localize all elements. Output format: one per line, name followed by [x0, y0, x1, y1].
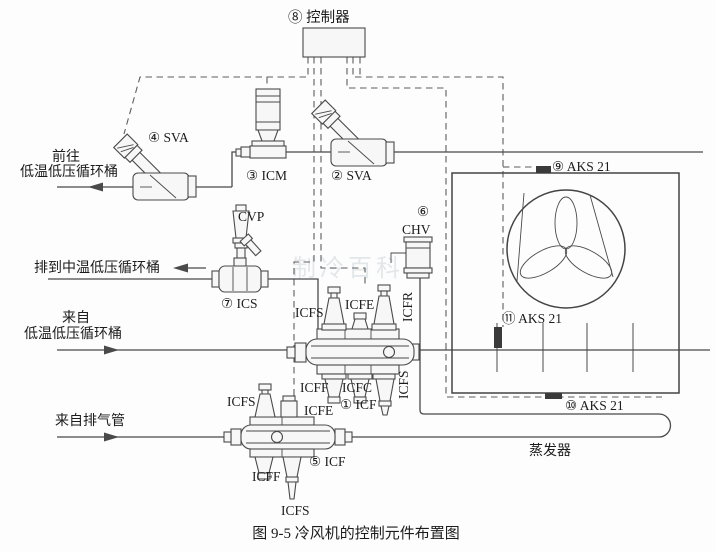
sensor-aks9	[536, 166, 551, 173]
evaporator-unit	[452, 173, 679, 393]
label-sva2: ② SVA	[331, 168, 372, 183]
icf5-cap-left	[224, 432, 231, 442]
control-line-to-aks11	[353, 57, 503, 327]
icf5-cap-right	[345, 432, 352, 442]
icf1-icfe-valve	[352, 319, 368, 329]
label-icf1-icfs-bottom: ICFS	[396, 370, 411, 399]
icf5-flange-left	[231, 429, 241, 445]
icf5-flange-right	[335, 429, 345, 445]
label-icf5-icfs-top: ICFS	[227, 394, 256, 409]
label-controller: ⑧ 控制器	[288, 9, 350, 26]
label-icf1-icfe: ICFE	[345, 297, 374, 312]
evaporator-box	[452, 173, 679, 393]
label-from-drum-2: 低温低压循环桶	[24, 326, 122, 342]
label-icm3: ③ ICM	[246, 168, 287, 183]
suction-pipe-top	[232, 152, 703, 187]
label-icf5-icfe: ICFE	[304, 403, 333, 418]
label-icf1-icfr: ICFR	[400, 292, 415, 322]
arrow-right-liquid	[104, 346, 119, 355]
icm-body	[250, 146, 286, 158]
icf1-icfs-bottom-cone	[376, 379, 394, 401]
label-icf5-icff: ICFF	[252, 469, 281, 484]
figure-9-5-diagram: 制冷百科	[0, 0, 716, 552]
sva4-flange	[188, 176, 196, 197]
icf1-flange-left	[295, 343, 306, 362]
icf5-sight-glass	[272, 432, 283, 443]
label-sva4: ④ SVA	[148, 130, 189, 145]
valve-icm-3	[236, 89, 286, 158]
sensor-aks11	[494, 327, 502, 348]
icf5-icfe-valve	[281, 401, 297, 417]
icm-neck	[258, 130, 278, 141]
icf1-bottom-base	[317, 365, 399, 374]
label-dest-drum-1: 前往	[52, 148, 80, 165]
label-icf5-name: ⑤ ICF	[309, 454, 346, 469]
sva2-flange	[386, 142, 394, 163]
fan-blade	[555, 197, 577, 249]
sensor-aks10	[545, 393, 562, 399]
icf1-icfs-top-cone	[324, 298, 344, 324]
chv-ring2	[407, 273, 429, 278]
arrow-left-mt-drum	[173, 264, 188, 273]
label-from-discharge: 来自排气管	[55, 413, 125, 429]
label-dest-drum-2: 低温低压循环桶	[20, 164, 118, 180]
icf1-cap-left	[287, 347, 295, 358]
label-aks10: ⑩ AKS 21	[565, 398, 624, 413]
ics-flange-left	[212, 271, 219, 287]
arrow-left-lt-drum	[88, 183, 103, 192]
label-evaporator: 蒸发器	[529, 443, 571, 459]
sva4-body	[133, 173, 189, 200]
valve-ics-7	[212, 258, 268, 292]
chv-cap	[404, 237, 432, 242]
icf5-icfs-top-cone	[255, 394, 275, 417]
icf1-manifold-body	[306, 339, 414, 365]
sva2-body	[331, 139, 387, 166]
diagram-canvas: 制冷百科	[0, 0, 716, 552]
figure-caption: 图 9-5 冷风机的控制元件布置图	[252, 525, 460, 542]
valve-sva-2	[312, 100, 394, 166]
controller-box	[303, 28, 365, 57]
chv-ring1	[404, 268, 432, 273]
ics-flange-right	[261, 271, 268, 287]
label-cvp: CVP	[238, 209, 264, 224]
label-ics7: ⑦ ICS	[221, 296, 258, 311]
chv-body	[406, 242, 430, 268]
label-aks9: ⑨ AKS 21	[552, 159, 611, 174]
ics-body	[219, 266, 261, 292]
label-icf1-icfc: ICFC	[342, 380, 372, 395]
label-aks11: ⑪ AKS 21	[502, 311, 562, 326]
label-icf1-icff: ICFF	[300, 380, 329, 395]
arrow-right-hotgas	[104, 433, 119, 442]
label-chv: CHV	[402, 222, 431, 237]
label-from-drum-1: 来自	[62, 310, 90, 326]
label-icf1-icfs-top: ICFS	[295, 305, 324, 320]
label-chv-num: ⑥	[417, 204, 429, 219]
label-icf1-name: ① ICF	[340, 397, 377, 412]
controller	[303, 28, 365, 57]
icf1-sight-glass	[384, 347, 395, 358]
label-icf5-icfs-bottom: ICFS	[281, 503, 310, 518]
icm-side-cap	[236, 149, 241, 156]
watermark-text: 制冷百科	[292, 255, 404, 282]
fan-blade	[561, 239, 617, 284]
label-drain-mt: 排到中温低压循环桶	[34, 260, 160, 276]
icf5-manifold-body	[241, 425, 335, 449]
fan-shroud-lines	[517, 193, 613, 281]
fan-blade	[515, 239, 571, 284]
icm-side-port	[241, 147, 250, 157]
icf5-icfs-bottom-cone	[283, 457, 301, 477]
icf1-right-top-cone	[374, 296, 394, 324]
icm-motor	[256, 89, 280, 130]
coil-fins	[497, 323, 633, 372]
